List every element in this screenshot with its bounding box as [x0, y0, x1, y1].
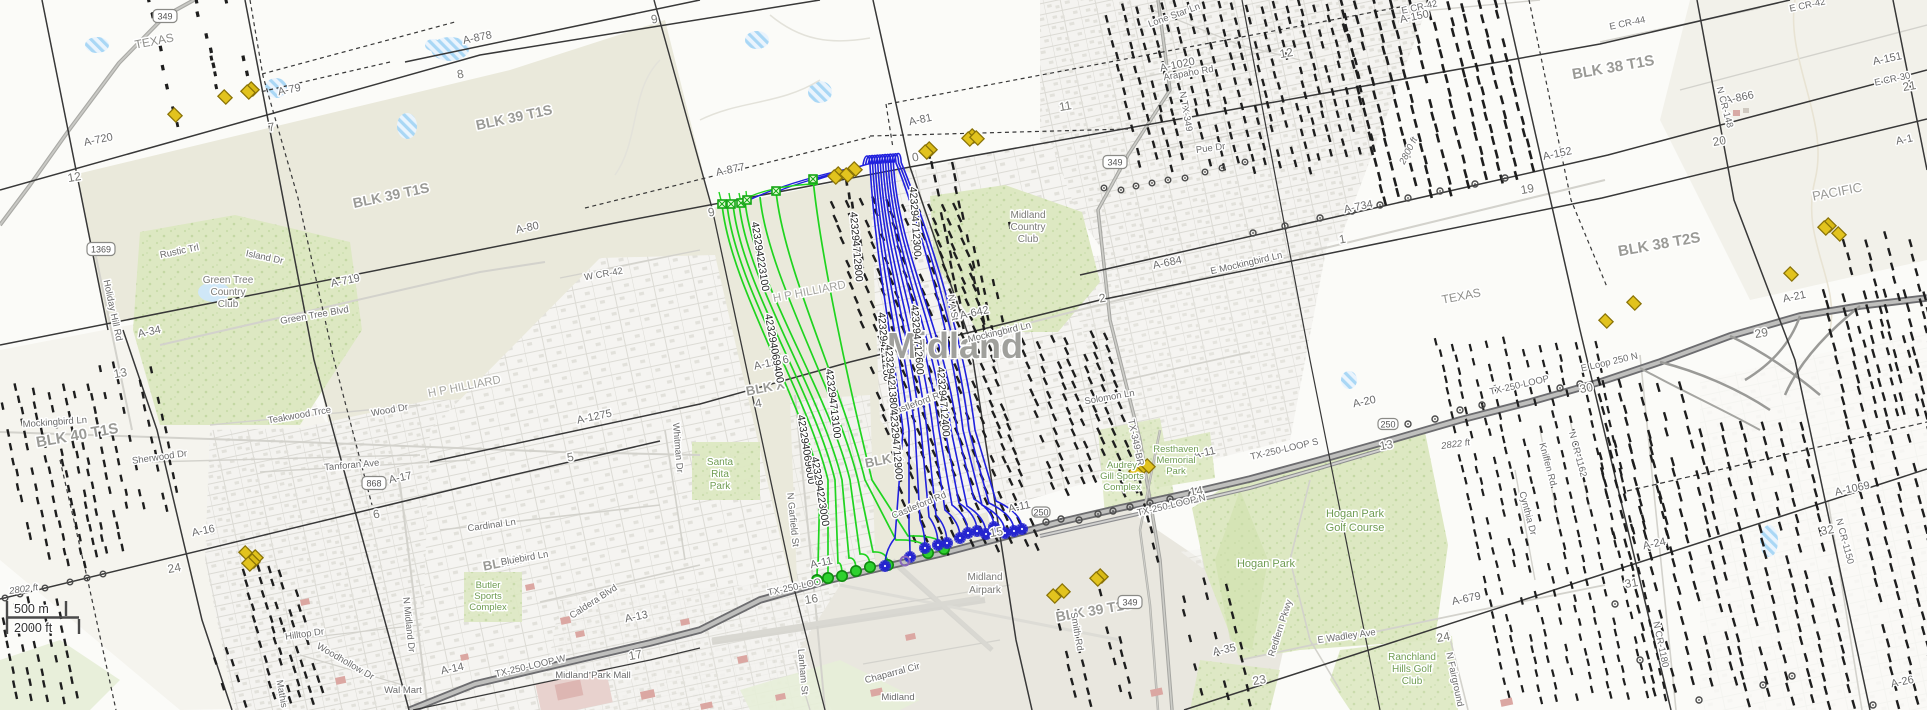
svg-text:Midland: Midland: [881, 692, 914, 703]
svg-text:15: 15: [989, 524, 1005, 540]
svg-text:Complex: Complex: [469, 602, 507, 613]
svg-text:Gill Sports: Gill Sports: [1100, 471, 1144, 482]
svg-text:250: 250: [1033, 508, 1048, 518]
svg-text:Hogan Park: Hogan Park: [1326, 508, 1385, 520]
svg-text:23: 23: [1252, 672, 1268, 688]
svg-text:Complex: Complex: [1103, 482, 1141, 493]
svg-text:30: 30: [1579, 380, 1595, 396]
svg-text:Resthaven: Resthaven: [1153, 444, 1198, 455]
svg-text:2000 ft: 2000 ft: [14, 621, 53, 635]
svg-text:Club: Club: [1018, 234, 1039, 245]
svg-text:Santa: Santa: [707, 457, 734, 468]
svg-text:Country: Country: [210, 287, 245, 298]
svg-text:Midland Park Mall: Midland Park Mall: [555, 670, 631, 681]
svg-text:Audrey: Audrey: [1107, 460, 1137, 471]
svg-text:19: 19: [1520, 181, 1536, 197]
svg-text:13: 13: [113, 365, 129, 381]
svg-text:Ranchland: Ranchland: [1388, 652, 1436, 663]
svg-text:Park: Park: [710, 481, 732, 492]
svg-text:Memorial: Memorial: [1156, 455, 1195, 466]
svg-text:Wal Mart: Wal Mart: [384, 685, 422, 696]
svg-text:24: 24: [1436, 629, 1452, 645]
svg-text:12: 12: [67, 169, 83, 185]
svg-text:349: 349: [157, 12, 172, 22]
svg-text:20: 20: [1712, 133, 1728, 149]
svg-text:Golf Course: Golf Course: [1326, 522, 1385, 534]
svg-text:Country: Country: [1010, 222, 1045, 233]
svg-text:349: 349: [1122, 598, 1137, 608]
svg-text:1369: 1369: [91, 245, 111, 255]
svg-text:349: 349: [1107, 158, 1122, 168]
svg-text:16: 16: [804, 591, 820, 607]
svg-text:Airpark: Airpark: [969, 585, 1002, 596]
svg-text:Club: Club: [218, 299, 239, 310]
svg-text:868: 868: [366, 479, 381, 489]
svg-text:Sports: Sports: [474, 591, 502, 602]
svg-text:500 m: 500 m: [14, 602, 49, 616]
svg-text:29: 29: [1754, 325, 1770, 341]
svg-text:Rita: Rita: [711, 469, 729, 480]
svg-text:Green Tree: Green Tree: [203, 275, 254, 286]
svg-text:31: 31: [1624, 575, 1640, 591]
svg-text:Midland: Midland: [967, 572, 1002, 583]
svg-text:Club: Club: [1402, 676, 1423, 687]
svg-text:Midland: Midland: [1010, 210, 1045, 221]
svg-text:Hills Golf: Hills Golf: [1392, 664, 1432, 675]
svg-text:24: 24: [167, 560, 183, 576]
svg-text:17: 17: [628, 647, 644, 663]
svg-text:Hogan Park: Hogan Park: [1237, 558, 1296, 570]
svg-text:250: 250: [1380, 420, 1395, 430]
svg-text:12: 12: [1279, 45, 1295, 61]
svg-text:32: 32: [1820, 522, 1836, 538]
svg-text:13: 13: [1379, 437, 1395, 453]
svg-text:Butler: Butler: [476, 580, 501, 591]
svg-text:Park: Park: [1166, 466, 1186, 477]
